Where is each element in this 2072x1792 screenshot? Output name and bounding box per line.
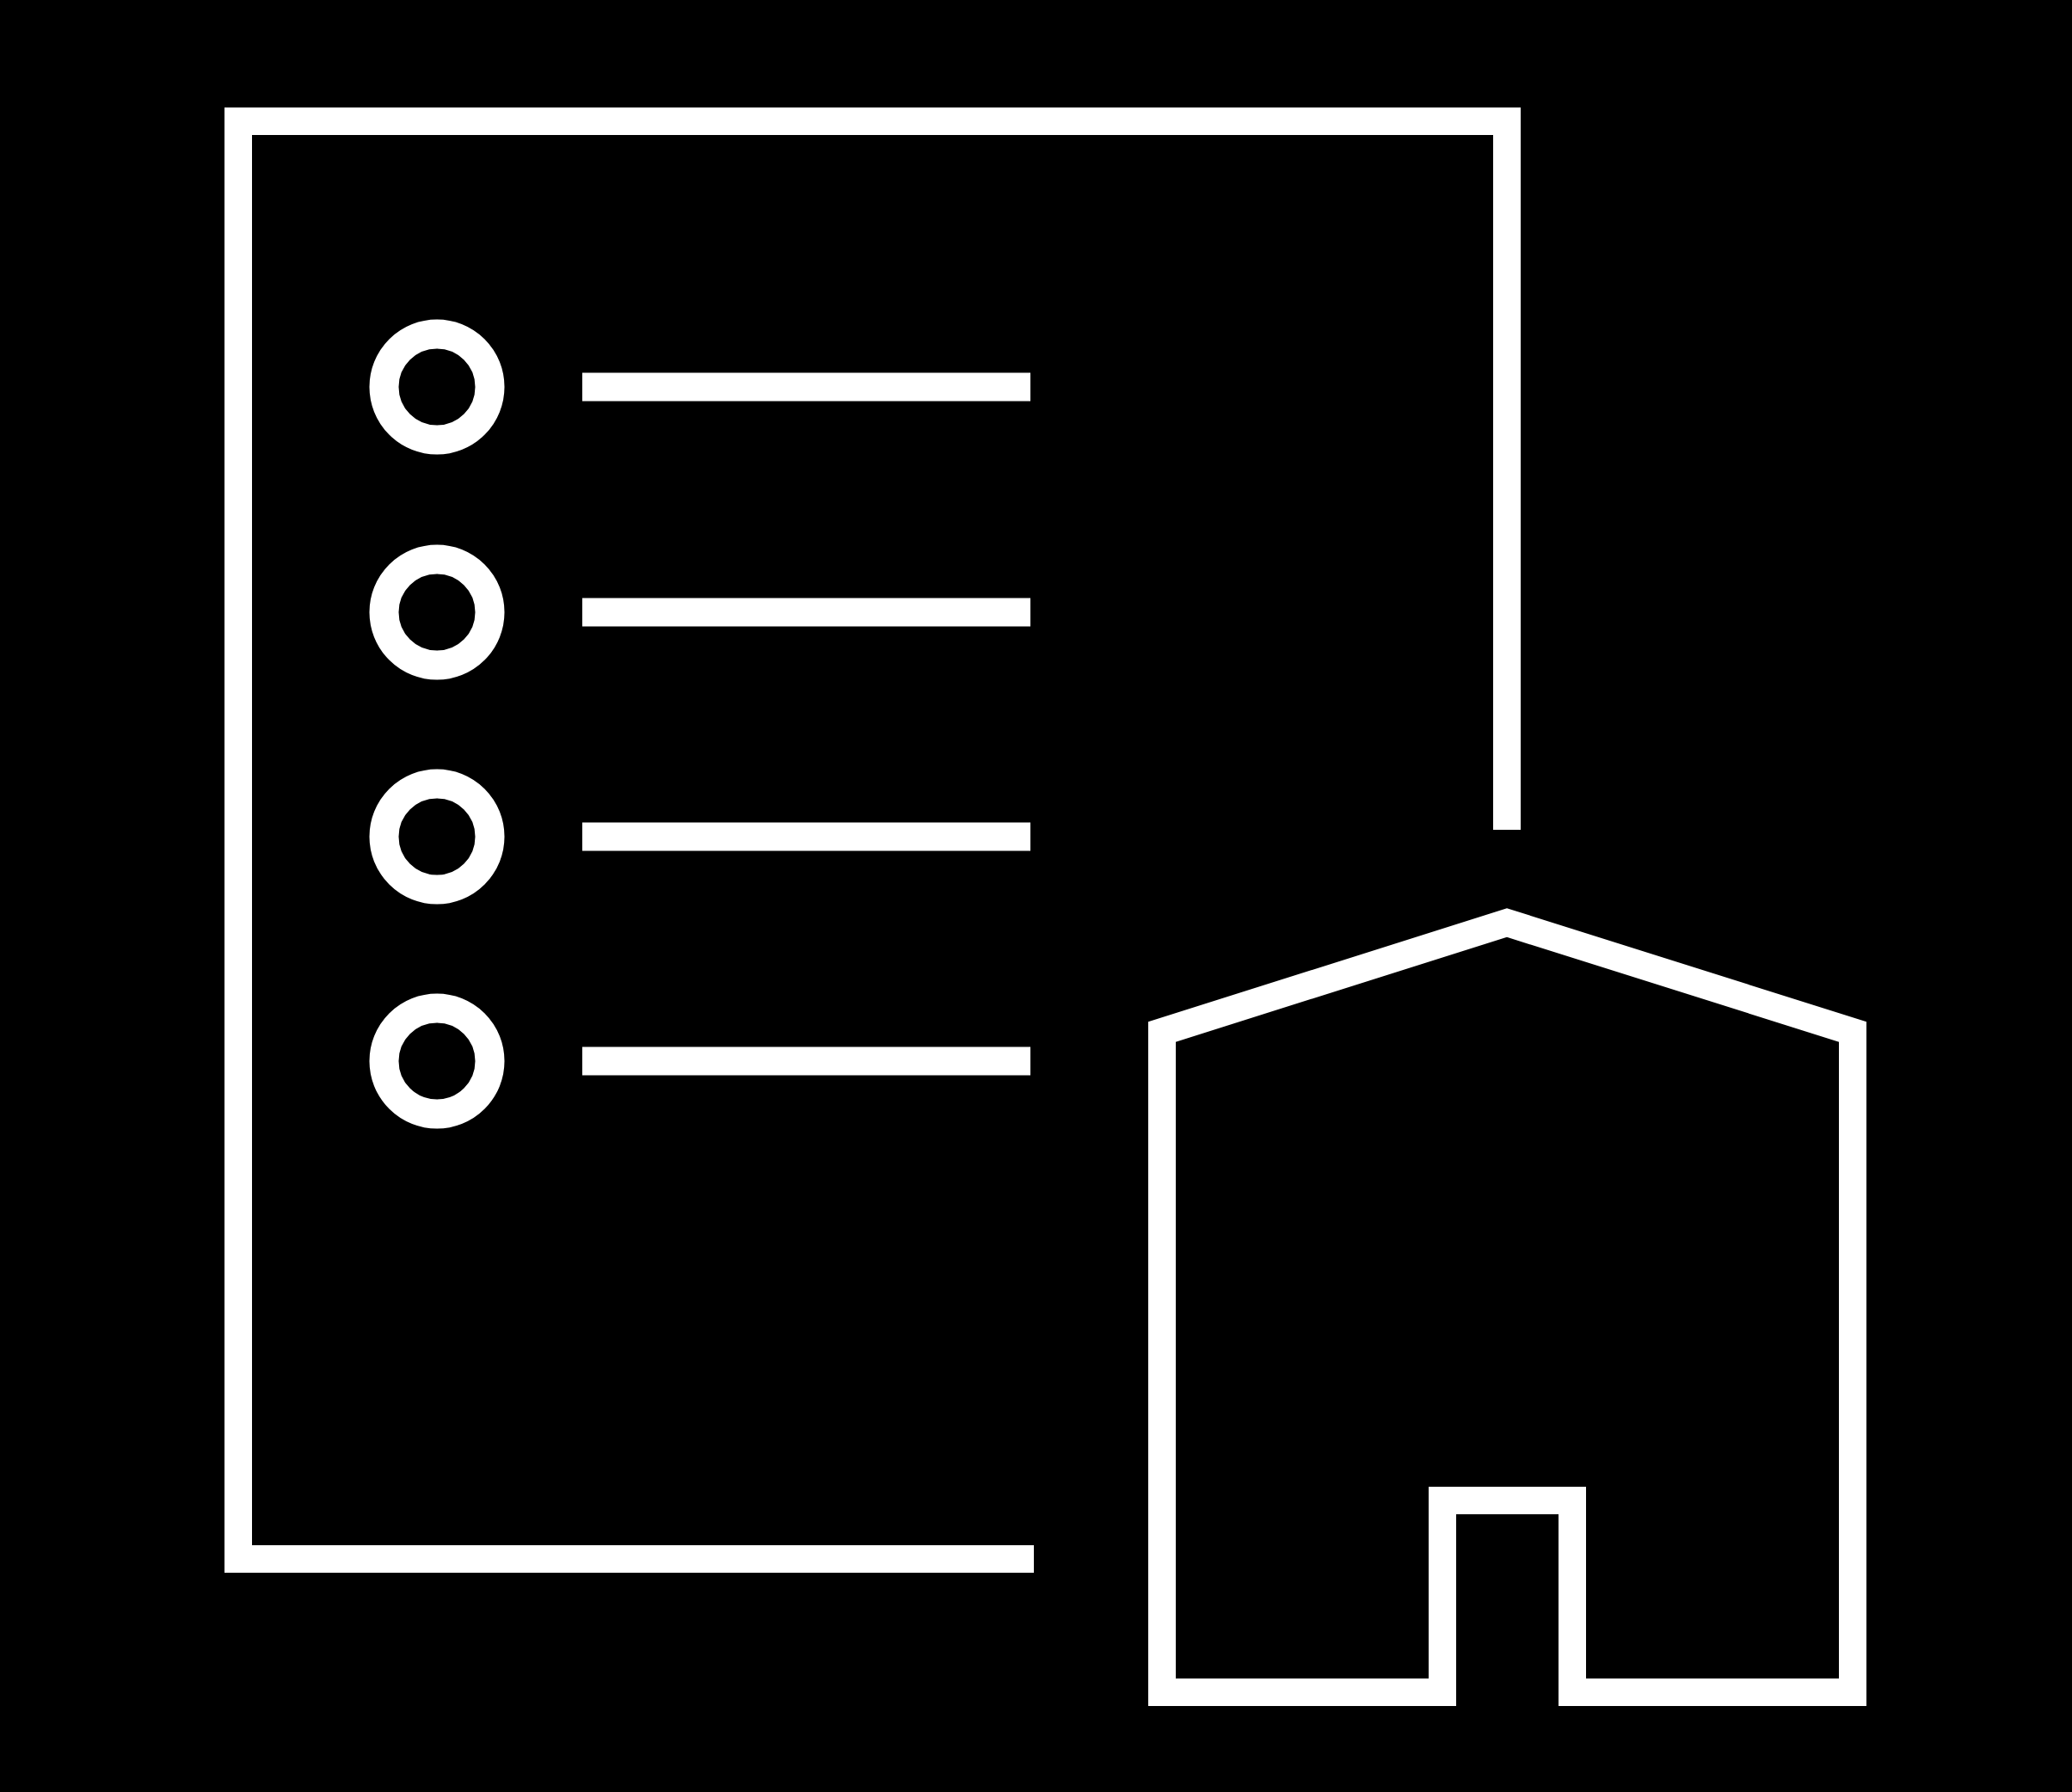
bullet-circle-icon [384, 784, 490, 890]
list-lines [582, 387, 1030, 1061]
bullet-circle-icon [384, 1009, 490, 1114]
checklist-house-icon [0, 0, 2072, 1792]
bullet-circle-icon [384, 334, 490, 440]
house-walls-roof-outline [1162, 923, 1853, 1706]
icon-canvas [0, 0, 2072, 1792]
bullet-circle-icon [384, 560, 490, 666]
house-base-and-door-outline [1148, 1500, 1866, 1692]
bullet-list [384, 334, 490, 1114]
